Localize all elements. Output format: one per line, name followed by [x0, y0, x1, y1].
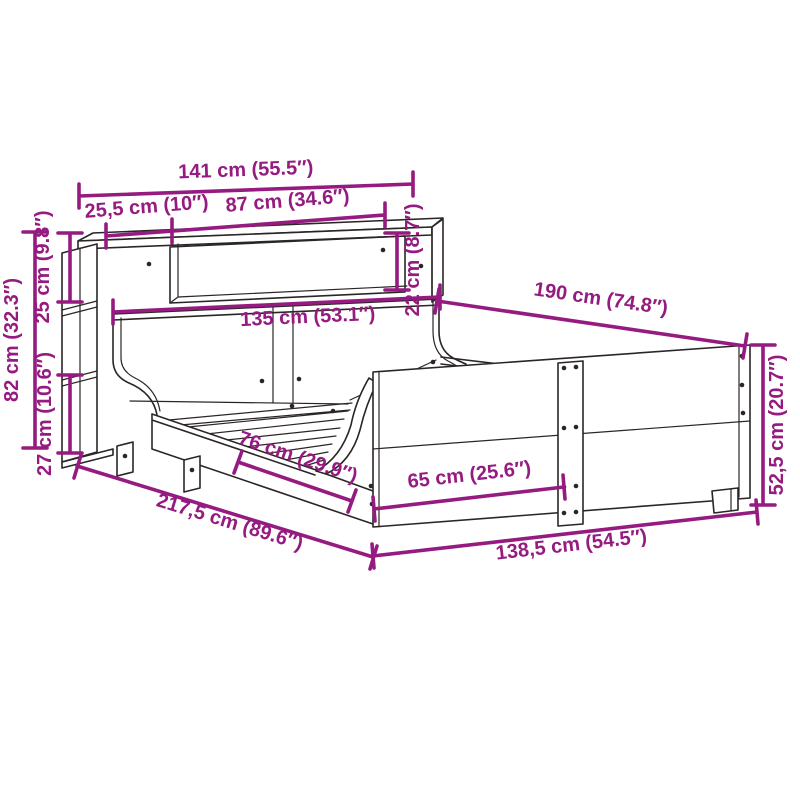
front-leg-left	[117, 442, 133, 476]
dim-label-total-length: 217,5 cm (89.6″)	[154, 490, 306, 555]
product-diagram: 141 cm (55.5″) 25,5 cm (10″) 87 cm (34.6…	[0, 0, 800, 800]
footboard	[373, 345, 750, 527]
screw-dot	[574, 365, 579, 370]
diagram-canvas: 141 cm (55.5″) 25,5 cm (10″) 87 cm (34.6…	[0, 0, 800, 800]
screw-dot	[574, 425, 579, 430]
headboard-left-wing	[113, 314, 157, 415]
screw-dot	[381, 248, 386, 253]
screw-dot	[297, 377, 302, 382]
footboard-corner-leg	[712, 488, 738, 513]
screw-dot	[562, 426, 567, 431]
shelf-opening-frame	[170, 236, 405, 303]
headboard-left-wing-inner	[121, 318, 160, 411]
dim-label-total-width: 141 cm (55.5″)	[178, 157, 314, 184]
headboard-right-wing	[439, 299, 466, 364]
footboard-center-post	[558, 361, 583, 526]
screw-dot	[331, 409, 336, 414]
dim-label-footboard-height: 52,5 cm (20.7″)	[766, 355, 788, 496]
dim-label-total-foot-width: 138,5 cm (54.5″)	[495, 526, 648, 565]
screw-dot	[431, 360, 436, 365]
dim-footboard-height: 52,5 cm (20.7″)	[751, 345, 788, 505]
screw-dot	[290, 404, 295, 409]
screw-dot	[369, 484, 374, 489]
screw-dot	[147, 262, 152, 267]
screw-dot	[190, 468, 195, 473]
dim-label-bottom-section-height: 27 cm (10.6″)	[34, 352, 56, 476]
dim-label-inner-length: 190 cm (74.8″)	[532, 278, 669, 319]
front-leg-right	[184, 456, 200, 492]
bookcase-shelf-opening	[167, 236, 408, 309]
dim-inner-length: 190 cm (74.8″)	[435, 278, 747, 358]
screw-dot	[123, 454, 128, 459]
screw-dot	[574, 510, 579, 515]
screw-dot	[260, 379, 265, 384]
screw-dot	[562, 366, 567, 371]
screw-dot	[562, 511, 567, 516]
screw-dot	[741, 411, 746, 416]
dim-label-headboard-height: 82 cm (32.3″)	[1, 278, 23, 402]
screw-dot	[740, 383, 745, 388]
screw-dot	[574, 484, 579, 489]
